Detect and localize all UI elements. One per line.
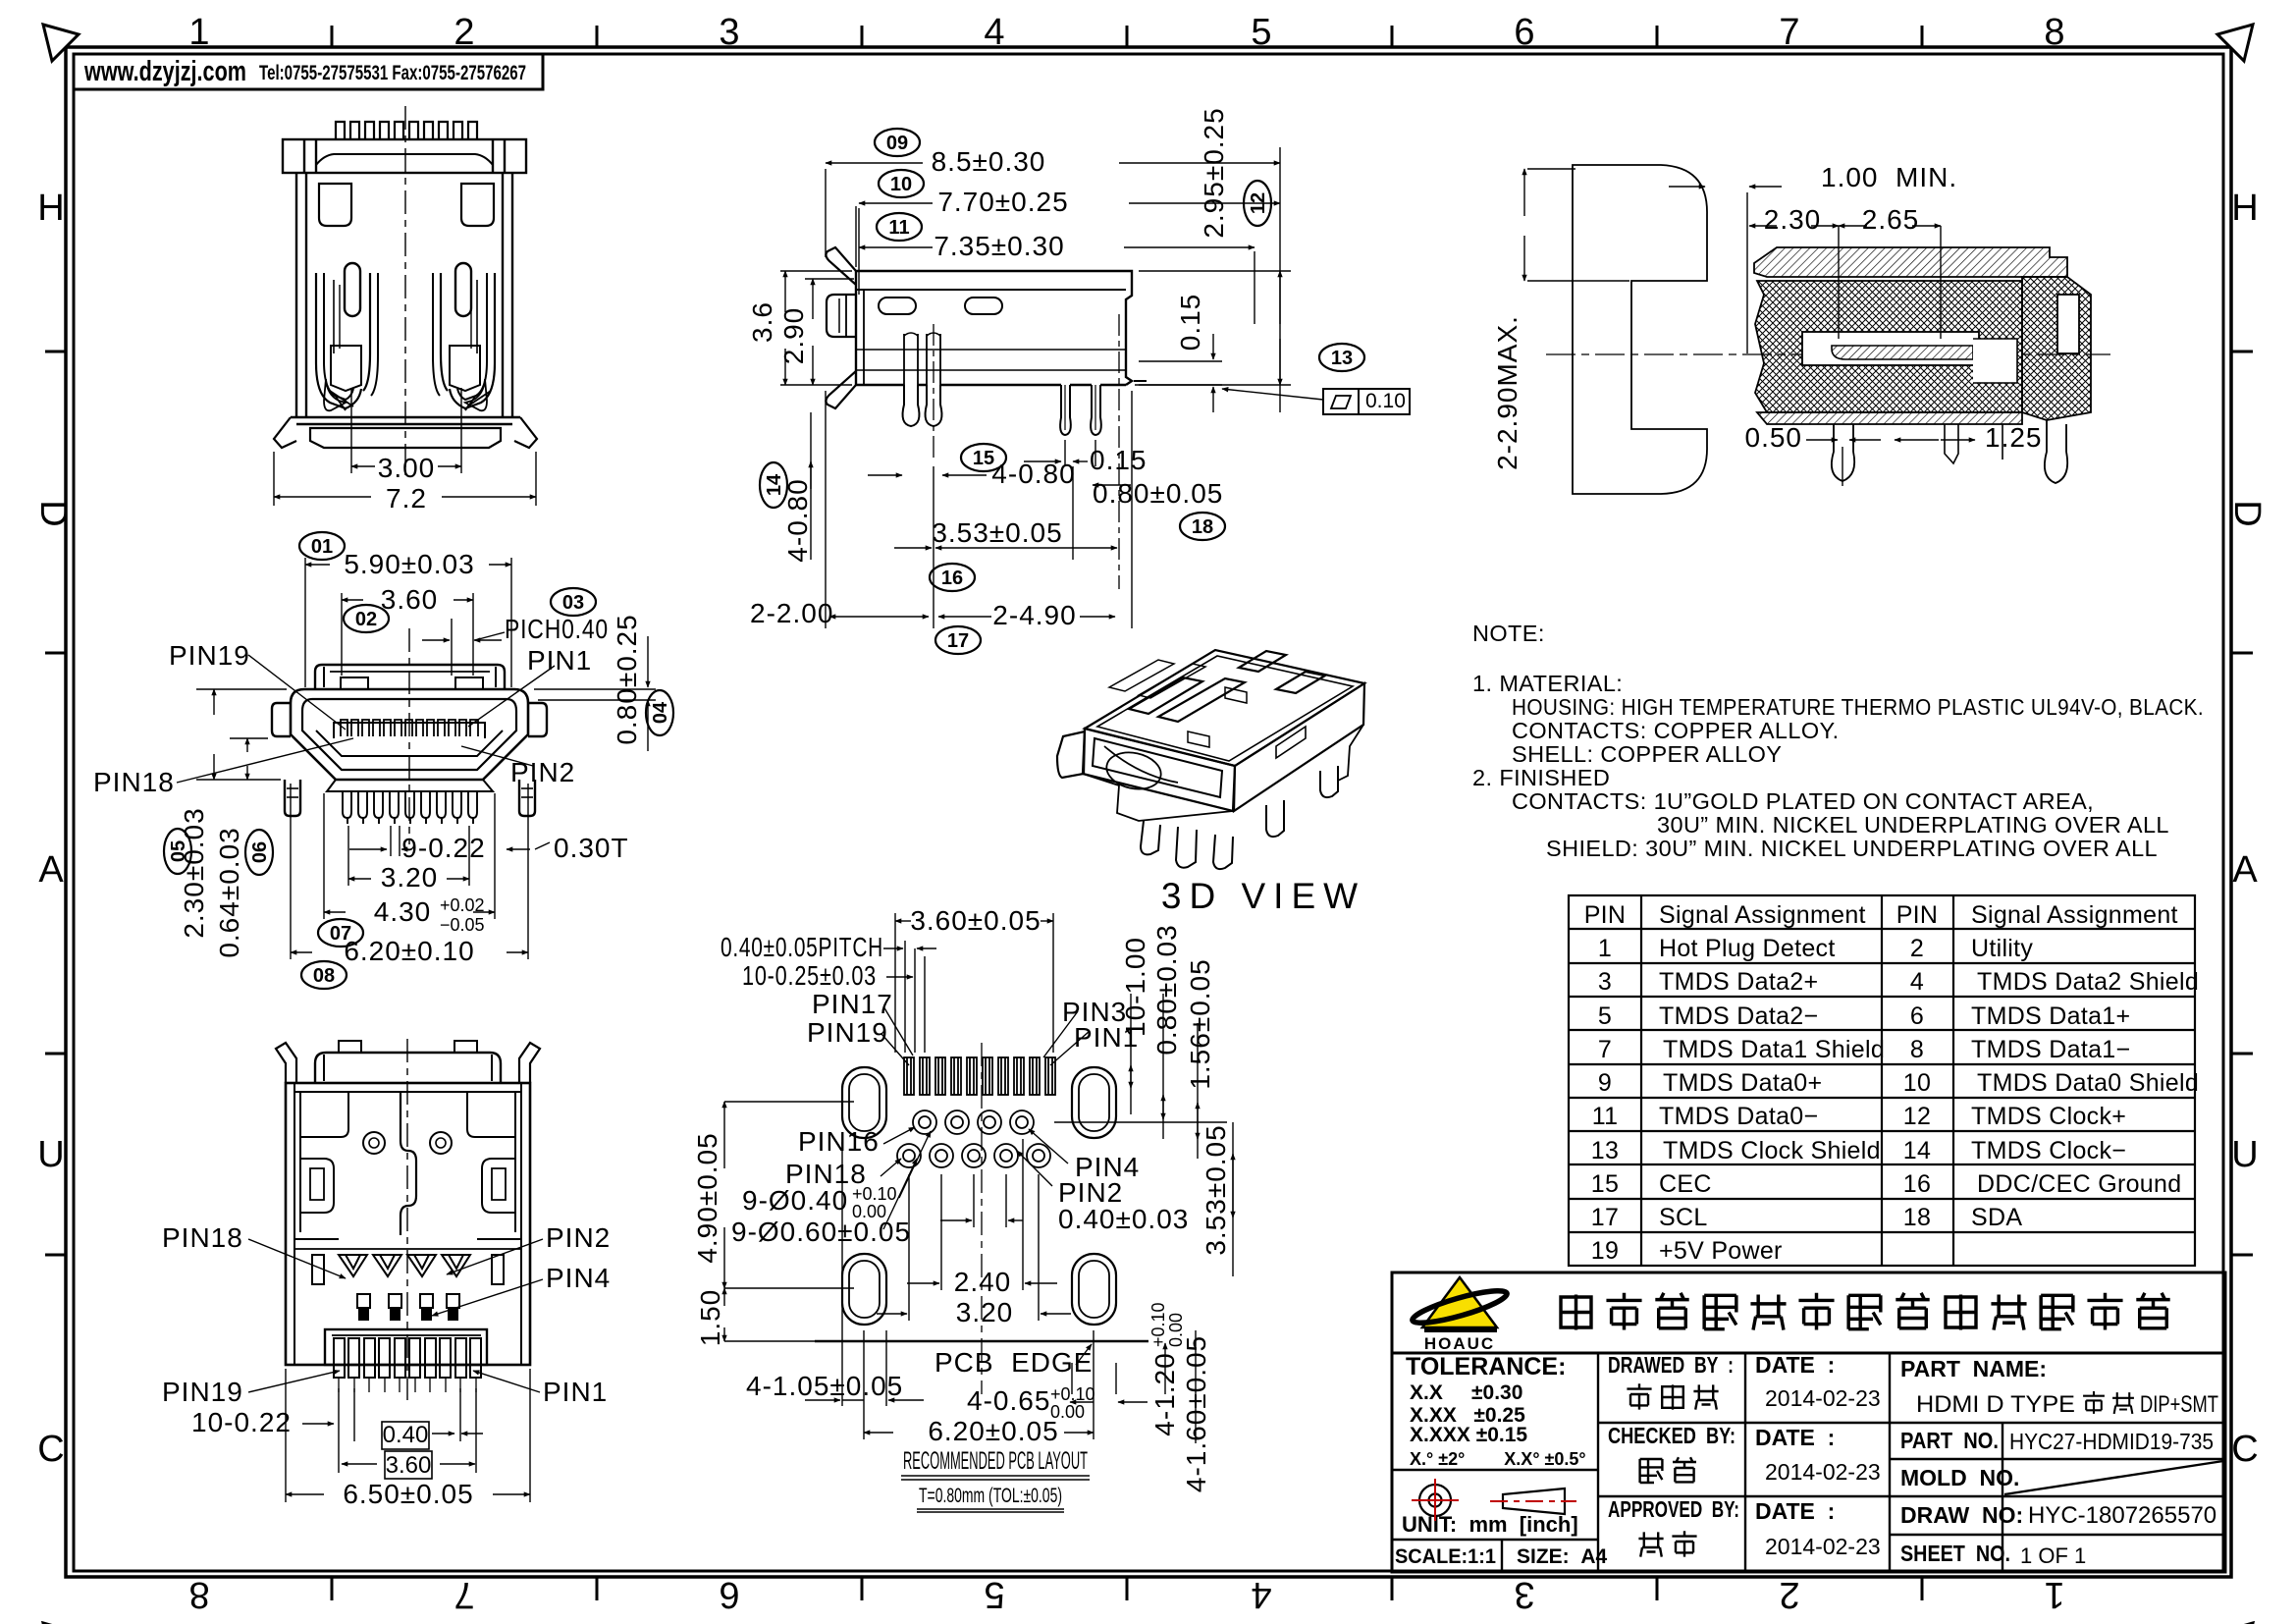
svg-text:PIN: PIN: [1584, 901, 1627, 929]
svg-text:DATE :: DATE :: [1755, 1352, 1835, 1378]
svg-text:3: 3: [1598, 968, 1612, 996]
svg-text:6.50±0.05: 6.50±0.05: [343, 1479, 473, 1509]
svg-text:8: 8: [188, 1574, 209, 1615]
svg-text:SDA: SDA: [1971, 1204, 2022, 1231]
svg-text:7: 7: [1598, 1036, 1612, 1063]
svg-text:1.25: 1.25: [1985, 422, 2043, 453]
svg-text:0.10: 0.10: [1365, 390, 1406, 412]
svg-text:13: 13: [1591, 1137, 1619, 1164]
svg-text:3.53±0.05: 3.53±0.05: [1201, 1124, 1231, 1255]
svg-text:10: 10: [890, 174, 912, 195]
svg-text:7.70±0.25: 7.70±0.25: [937, 187, 1068, 217]
svg-text:0.40±0.03: 0.40±0.03: [1058, 1204, 1189, 1234]
svg-text:4-0.65: 4-0.65: [967, 1385, 1050, 1416]
svg-text:7.2: 7.2: [386, 483, 427, 514]
svg-text:03: 03: [562, 592, 584, 614]
svg-text:CEC: CEC: [1659, 1170, 1712, 1198]
svg-text:+0.02: +0.02: [440, 895, 485, 915]
svg-text:3: 3: [719, 12, 739, 53]
svg-text:CONTACTS: COPPER ALLOY.: CONTACTS: COPPER ALLOY.: [1512, 718, 1840, 743]
svg-text:PIN19: PIN19: [807, 1017, 888, 1048]
svg-text:4: 4: [984, 12, 1004, 53]
svg-text:0.15: 0.15: [1175, 294, 1205, 352]
svg-text:12: 12: [1903, 1103, 1931, 1130]
svg-text:4-1.60±0.05: 4-1.60±0.05: [1181, 1335, 1211, 1492]
svg-text:0.64±0.03: 0.64±0.03: [214, 827, 244, 957]
svg-text:Signal Assignment: Signal Assignment: [1971, 901, 2178, 929]
svg-text:3.20: 3.20: [381, 862, 439, 893]
svg-text:CHECKED BY:: CHECKED BY:: [1608, 1423, 1735, 1448]
svg-text:TMDS Data1+: TMDS Data1+: [1971, 1002, 2130, 1030]
svg-text:0.15: 0.15: [1090, 445, 1148, 475]
svg-text:11: 11: [888, 217, 909, 239]
svg-text:2: 2: [1779, 1574, 1799, 1615]
svg-text:TMDS Data2 Shield: TMDS Data2 Shield: [1977, 968, 2199, 996]
svg-text:TMDS Data1−: TMDS Data1−: [1971, 1036, 2130, 1063]
svg-text:2.30: 2.30: [1764, 204, 1822, 235]
svg-text:DIP+SMT: DIP+SMT: [2140, 1391, 2218, 1418]
svg-text:TMDS Clock−: TMDS Clock−: [1971, 1137, 2126, 1164]
svg-text:DRAWED BY :: DRAWED BY :: [1608, 1352, 1734, 1378]
svg-text:10-0.22: 10-0.22: [191, 1407, 292, 1437]
svg-text:3.60: 3.60: [386, 1452, 432, 1479]
svg-text:2.65: 2.65: [1862, 204, 1920, 235]
svg-text:PIN19: PIN19: [169, 640, 250, 671]
svg-text:15: 15: [973, 448, 994, 469]
svg-text:TOLERANCE:: TOLERANCE:: [1406, 1353, 1566, 1380]
svg-text:30U” MIN. NICKEL UNDERPLATI: 30U” MIN. NICKEL UNDERPLATING OVER ALL: [1657, 812, 2169, 838]
svg-text:SIZE: A4: SIZE: A4: [1517, 1545, 1608, 1568]
svg-text:HYC-1807265570: HYC-1807265570: [2028, 1502, 2216, 1529]
svg-text:Utility: Utility: [1971, 935, 2033, 962]
svg-text:0.50: 0.50: [1745, 422, 1803, 453]
svg-text:0.30T: 0.30T: [554, 833, 629, 863]
svg-text:DATE :: DATE :: [1755, 1498, 1835, 1524]
svg-text:PART NAME:: PART NAME:: [1900, 1356, 2047, 1381]
svg-text:4.90±0.05: 4.90±0.05: [692, 1132, 722, 1263]
svg-text:3.6: 3.6: [747, 301, 777, 343]
svg-text:TMDS Clock Shield: TMDS Clock Shield: [1663, 1137, 1881, 1164]
svg-text:5: 5: [1598, 1002, 1612, 1030]
svg-text:+0.10: +0.10: [1148, 1302, 1168, 1347]
svg-text:TMDS Data2−: TMDS Data2−: [1659, 1002, 1818, 1030]
svg-text:CONTACTS: 1U”GOLD PLATED ON: CONTACTS: 1U”GOLD PLATED ON CONTACT AREA…: [1512, 788, 2094, 814]
svg-text:8.5±0.30: 8.5±0.30: [932, 146, 1046, 177]
svg-text:SHELL: COPPER ALLOY: SHELL: COPPER ALLOY: [1512, 741, 1782, 767]
svg-text:2014-02-23: 2014-02-23: [1765, 1385, 1881, 1411]
svg-text:6.20±0.10: 6.20±0.10: [344, 936, 474, 966]
svg-text:9-Ø0.40: 9-Ø0.40: [742, 1185, 848, 1216]
svg-text:PIN2: PIN2: [510, 757, 575, 787]
svg-text:HYC27-HDMID19-735: HYC27-HDMID19-735: [2009, 1429, 2214, 1454]
svg-text:PCB EDGE: PCB EDGE: [934, 1347, 1093, 1378]
svg-text:7: 7: [1779, 12, 1799, 53]
svg-text:4-1.05±0.05: 4-1.05±0.05: [746, 1371, 903, 1401]
svg-text:HOUSING: HIGH TEMPERATURE T: HOUSING: HIGH TEMPERATURE THERMO PLASTIC…: [1512, 694, 2204, 720]
svg-text:2: 2: [1910, 935, 1924, 962]
svg-text:X.° ±2° X.X° ±0.5°: X.° ±2° X.X° ±0.5°: [1410, 1449, 1586, 1469]
svg-text:5: 5: [984, 1574, 1004, 1615]
svg-text:PIN: PIN: [1896, 901, 1939, 929]
svg-text:3.20: 3.20: [956, 1297, 1014, 1327]
svg-text:NOTE:: NOTE:: [1472, 621, 1545, 646]
svg-text:C: C: [2231, 1429, 2258, 1470]
svg-text:16: 16: [1903, 1170, 1931, 1198]
svg-text:HDMI D TYPE: HDMI D TYPE: [1916, 1391, 2075, 1418]
svg-text:D: D: [2226, 500, 2268, 526]
svg-text:U: U: [37, 1134, 64, 1175]
svg-text:17: 17: [1591, 1204, 1619, 1231]
svg-text:SCL: SCL: [1659, 1204, 1708, 1231]
svg-text:8: 8: [2044, 12, 2064, 53]
svg-text:A: A: [2232, 849, 2258, 891]
svg-text:+0.10: +0.10: [852, 1184, 897, 1204]
svg-text:PIN1: PIN1: [543, 1377, 608, 1407]
svg-text:TMDS Data2+: TMDS Data2+: [1659, 968, 1818, 996]
svg-text:PICH0.40: PICH0.40: [505, 614, 609, 644]
svg-text:3.00: 3.00: [378, 453, 436, 483]
svg-text:19: 19: [1591, 1237, 1619, 1265]
svg-text:X.X ±0.30: X.X ±0.30: [1410, 1381, 1522, 1404]
svg-text:2. FINISHED: 2. FINISHED: [1472, 765, 1610, 790]
svg-text:09: 09: [886, 133, 908, 154]
svg-text:4: 4: [1910, 968, 1924, 996]
svg-text:2-2.00: 2-2.00: [750, 598, 833, 628]
svg-text:www.dzyjzj.com: www.dzyjzj.com: [83, 56, 246, 87]
svg-text:SHIELD: 30U” MIN. NICKEL U: SHIELD: 30U” MIN. NICKEL UNDERPLATING OV…: [1546, 836, 2158, 861]
svg-text:2.90: 2.90: [778, 307, 809, 365]
svg-text:12: 12: [1248, 192, 1269, 214]
svg-text:MOLD NO.: MOLD NO.: [1900, 1465, 2019, 1490]
svg-text:10-0.25±0.03: 10-0.25±0.03: [742, 960, 877, 991]
svg-text:1: 1: [188, 12, 209, 53]
svg-text:4-1.20: 4-1.20: [1149, 1352, 1180, 1435]
svg-text:2.40: 2.40: [954, 1267, 1012, 1297]
svg-text:APPROVED BY:: APPROVED BY:: [1608, 1496, 1739, 1522]
svg-text:07: 07: [330, 923, 351, 945]
svg-text:5: 5: [1251, 12, 1271, 53]
svg-text:6: 6: [1910, 1002, 1924, 1030]
svg-text:08: 08: [313, 965, 335, 987]
svg-text:3.60±0.05: 3.60±0.05: [910, 905, 1041, 936]
svg-text:1. MATERIAL:: 1. MATERIAL:: [1472, 671, 1623, 696]
svg-text:0.80±0.05: 0.80±0.05: [1093, 478, 1223, 509]
svg-text:1 OF 1: 1 OF 1: [2020, 1543, 2086, 1568]
svg-text:1: 1: [1598, 935, 1612, 962]
svg-text:PART NO.: PART NO.: [1900, 1428, 1999, 1453]
svg-text:10: 10: [1903, 1069, 1931, 1097]
svg-text:SCALE:1:1: SCALE:1:1: [1395, 1545, 1496, 1568]
svg-text:9-0.22: 9-0.22: [401, 833, 485, 863]
svg-text:18: 18: [1903, 1204, 1931, 1231]
svg-text:14: 14: [764, 473, 785, 496]
svg-text:14: 14: [1903, 1137, 1931, 1164]
svg-text:17: 17: [947, 630, 969, 652]
svg-text:01: 01: [311, 536, 333, 558]
svg-text:TMDS Data1 Shield: TMDS Data1 Shield: [1663, 1036, 1885, 1063]
svg-text:3D VIEW: 3D VIEW: [1161, 876, 1365, 916]
svg-text:3.60: 3.60: [381, 584, 439, 615]
svg-text:3.53±0.05: 3.53±0.05: [932, 517, 1062, 548]
svg-text:1: 1: [2044, 1574, 2064, 1615]
svg-text:PIN18: PIN18: [162, 1222, 243, 1253]
svg-text:1.00 MIN.: 1.00 MIN.: [1821, 162, 1957, 192]
svg-text:TMDS Data0 Shield: TMDS Data0 Shield: [1977, 1069, 2199, 1097]
svg-text:DRAW NO:: DRAW NO:: [1900, 1502, 2023, 1528]
svg-text:2.95±0.25: 2.95±0.25: [1199, 107, 1229, 238]
svg-text:X.XXX ±0.15: X.XXX ±0.15: [1410, 1424, 1527, 1446]
svg-text:−0.05: −0.05: [440, 915, 485, 935]
svg-text:T=0.80mm (TOL:±0.05): T=0.80mm (TOL:±0.05): [919, 1485, 1062, 1507]
svg-text:3: 3: [1514, 1574, 1534, 1615]
svg-text:10-1.00: 10-1.00: [1120, 937, 1150, 1037]
svg-text:+5V Power: +5V Power: [1659, 1237, 1783, 1265]
svg-text:TMDS Clock+: TMDS Clock+: [1971, 1103, 2126, 1130]
svg-text:2014-02-23: 2014-02-23: [1765, 1534, 1881, 1559]
svg-text:A: A: [38, 849, 64, 891]
svg-text:C: C: [37, 1429, 64, 1470]
svg-text:2: 2: [454, 12, 474, 53]
svg-text:D: D: [32, 500, 74, 526]
svg-text:02: 02: [355, 609, 377, 630]
svg-text:DATE :: DATE :: [1755, 1425, 1835, 1450]
svg-text:TMDS Data0+: TMDS Data0+: [1663, 1069, 1822, 1097]
svg-text:PIN19: PIN19: [162, 1377, 243, 1407]
svg-text:2-2.90MAX.: 2-2.90MAX.: [1492, 315, 1522, 470]
svg-text:RECOMMENDED PCB LAYOUT: RECOMMENDED PCB LAYOUT: [903, 1447, 1088, 1475]
svg-text:PIN2: PIN2: [546, 1222, 611, 1253]
svg-text:PIN4: PIN4: [546, 1263, 611, 1293]
svg-text:0.80±0.25: 0.80±0.25: [612, 614, 642, 744]
svg-text:11: 11: [1592, 1103, 1619, 1130]
svg-text:PIN16: PIN16: [798, 1126, 880, 1157]
svg-text:PIN18: PIN18: [93, 767, 175, 797]
svg-text:4.30: 4.30: [374, 896, 432, 927]
svg-text:05: 05: [168, 840, 189, 862]
svg-text:1.50: 1.50: [695, 1289, 725, 1347]
svg-text:Hot Plug Detect: Hot Plug Detect: [1659, 935, 1836, 962]
svg-text:PIN17: PIN17: [812, 989, 893, 1019]
svg-text:Signal Assignment: Signal Assignment: [1659, 901, 1866, 929]
svg-text:DDC/CEC Ground: DDC/CEC Ground: [1977, 1170, 2181, 1198]
svg-text:06: 06: [249, 841, 271, 863]
svg-text:4: 4: [1251, 1574, 1271, 1615]
svg-text:13: 13: [1331, 348, 1353, 369]
svg-text:15: 15: [1591, 1170, 1619, 1198]
svg-text:+0.10: +0.10: [1050, 1384, 1095, 1404]
svg-text:PIN1: PIN1: [527, 645, 592, 676]
svg-text:6: 6: [719, 1574, 739, 1615]
svg-text:6: 6: [1514, 12, 1534, 53]
svg-text:H: H: [2231, 188, 2258, 229]
svg-text:04: 04: [650, 701, 671, 724]
svg-text:9-Ø0.60±0.05: 9-Ø0.60±0.05: [731, 1217, 911, 1247]
svg-text:1.56±0.05: 1.56±0.05: [1185, 958, 1215, 1089]
svg-text:0.80±0.03: 0.80±0.03: [1151, 924, 1182, 1055]
svg-text:7.35±0.30: 7.35±0.30: [934, 231, 1064, 261]
svg-text:TMDS Data0−: TMDS Data0−: [1659, 1103, 1818, 1130]
svg-text:5.90±0.03: 5.90±0.03: [344, 549, 474, 579]
svg-text:6.20±0.05: 6.20±0.05: [928, 1416, 1058, 1446]
svg-text:U: U: [2231, 1134, 2258, 1175]
svg-text:2014-02-23: 2014-02-23: [1765, 1459, 1881, 1485]
svg-text:7: 7: [454, 1574, 474, 1615]
svg-text:Tel:0755-27575531 Fax:0755-27: Tel:0755-27575531 Fax:0755-27576267: [259, 62, 526, 84]
svg-text:SHEET NO.: SHEET NO.: [1900, 1541, 2010, 1566]
svg-text:H: H: [37, 188, 64, 229]
svg-text:2-4.90: 2-4.90: [992, 600, 1076, 630]
svg-text:9: 9: [1598, 1069, 1612, 1097]
svg-text:0.40±0.05PITCH: 0.40±0.05PITCH: [721, 932, 883, 962]
svg-text:8: 8: [1910, 1036, 1924, 1063]
svg-text:UNIT: mm [inch]: UNIT: mm [inch]: [1402, 1512, 1578, 1537]
svg-text:18: 18: [1192, 516, 1213, 538]
svg-text:HOAUC: HOAUC: [1424, 1334, 1495, 1353]
svg-text:16: 16: [941, 568, 963, 589]
svg-text:0.40: 0.40: [383, 1422, 429, 1448]
